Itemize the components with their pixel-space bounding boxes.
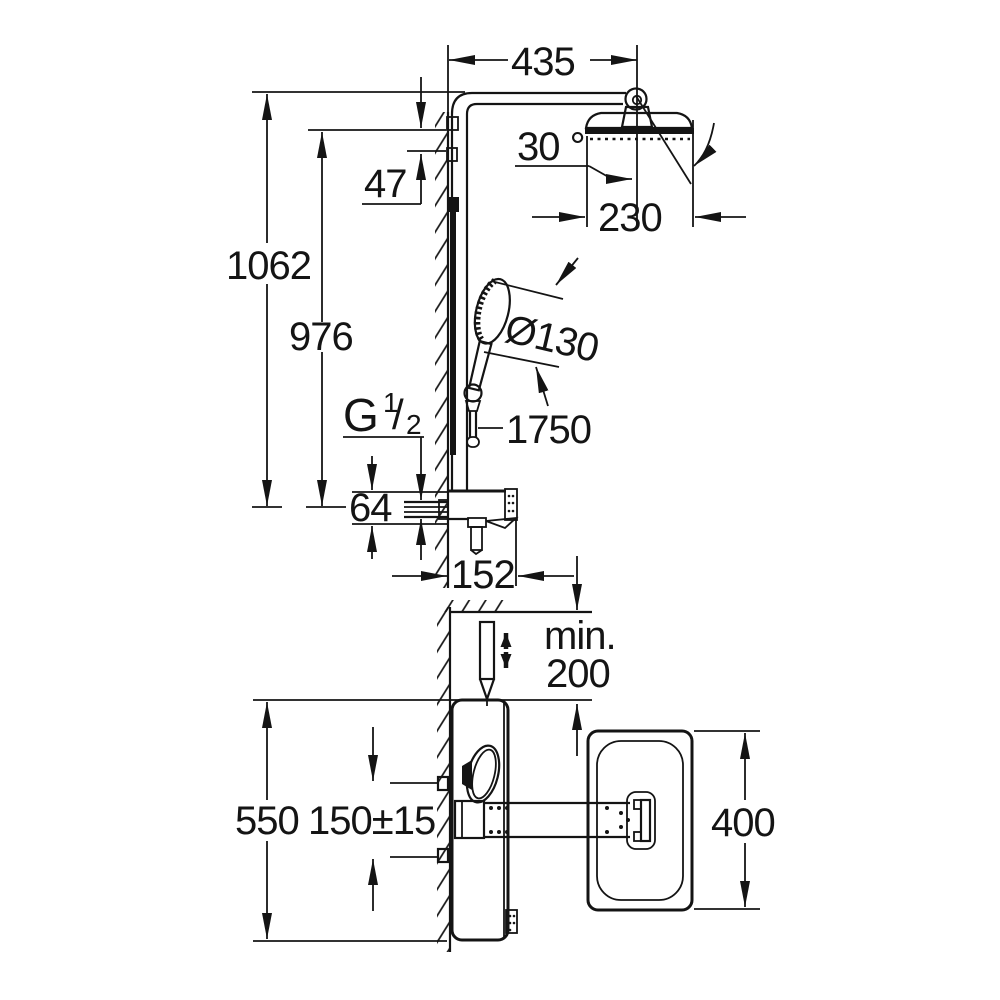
dim-1750: 1750 <box>478 408 591 452</box>
adjustment-tool-icon <box>480 622 506 706</box>
thread-g: G <box>343 389 378 441</box>
shower-dimension-drawing: 435 30 ° 230 1062 976 47 <box>0 0 1000 1000</box>
dim-label-400: 400 <box>711 801 775 845</box>
arm-base <box>455 801 484 838</box>
dim-label-dia130: Ø130 <box>501 307 602 371</box>
hose-end <box>467 437 479 447</box>
dock-bar <box>641 800 650 841</box>
dim-label-150-15: 150±15 <box>308 799 435 843</box>
dim-1062: 1062 <box>226 92 465 507</box>
slide-rail <box>450 200 456 455</box>
head-spray-face <box>585 128 694 134</box>
dim-label-550: 550 <box>235 799 299 843</box>
dim-47: 47 <box>362 77 446 206</box>
dim-label-435: 435 <box>511 40 575 84</box>
dim-g-half-thread: G 1 / 2 <box>343 387 424 560</box>
dim-label-230: 230 <box>598 196 662 240</box>
hose-block-dots <box>509 915 516 932</box>
valve-body <box>452 700 508 940</box>
dim-152: 152 <box>392 519 574 597</box>
outlet-collar <box>468 518 486 527</box>
dim-min-200: min. 200 <box>544 556 616 756</box>
dim-400: 400 <box>694 731 775 909</box>
thread-slash: / <box>392 391 404 438</box>
technical-drawing-page: 435 30 ° 230 1062 976 47 <box>0 0 1000 1000</box>
arm-screw-dots <box>489 806 630 834</box>
shelf-block-dots <box>508 495 515 513</box>
dim-label-1062: 1062 <box>226 244 311 288</box>
hose-outlet <box>471 527 482 550</box>
head-shower-crown <box>586 113 692 128</box>
dim-label-47: 47 <box>364 162 407 206</box>
dim-label-30deg: 30 ° <box>517 125 585 169</box>
dim-label-152: 152 <box>451 553 515 597</box>
valve-plan-view <box>438 700 692 940</box>
thread-denominator: 2 <box>406 409 421 440</box>
tilt-rotation-arrow <box>694 123 714 166</box>
dim-label-64: 64 <box>349 486 392 530</box>
shelf-front-block <box>505 489 517 520</box>
dim-150-15: 150±15 <box>308 727 438 911</box>
dim-label-1750: 1750 <box>506 408 591 452</box>
dim-label-976: 976 <box>289 315 353 359</box>
dim-label-200: 200 <box>546 652 610 696</box>
